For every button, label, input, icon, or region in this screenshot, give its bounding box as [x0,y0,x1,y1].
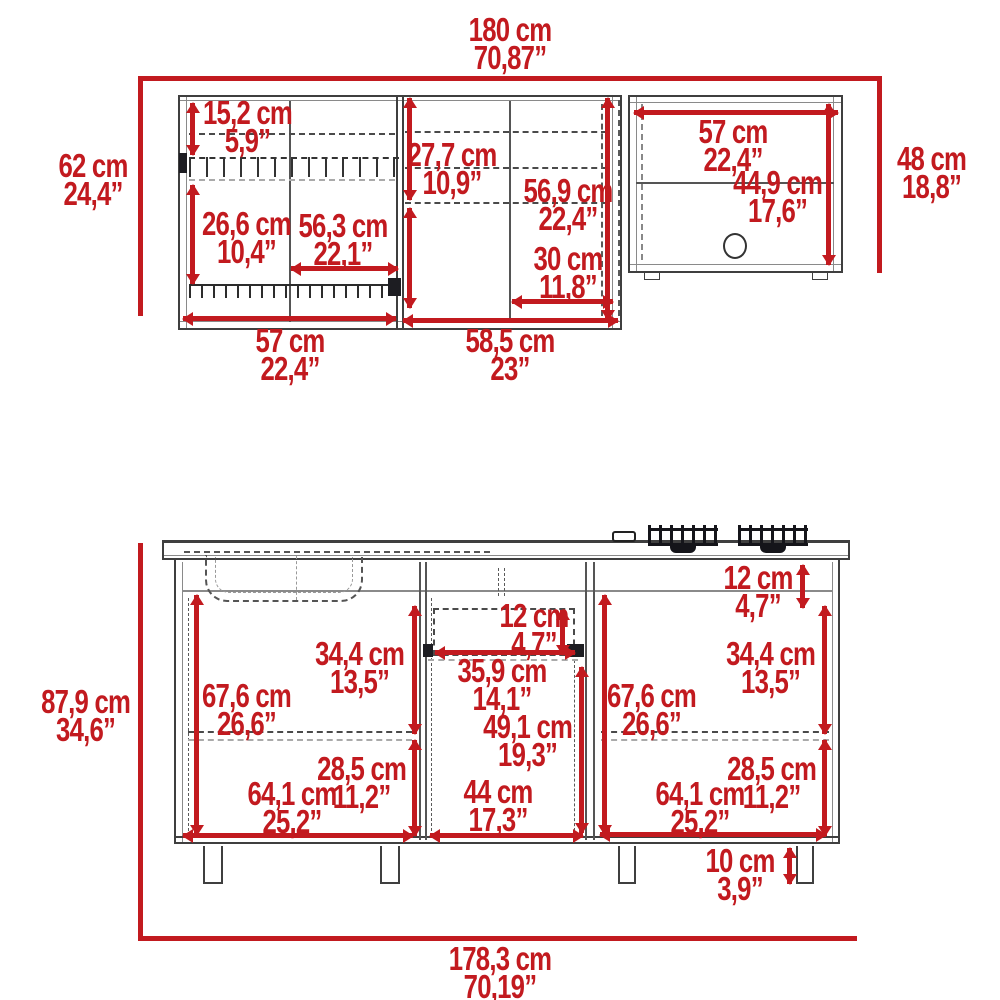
base-divider-1b [425,562,427,840]
open-shelf-foot-left [644,273,660,280]
dim-label-left-upper-section: 34,4 cm 13,5” [315,640,404,696]
cooktop-control-knob [612,531,636,542]
cable-hole [723,233,747,259]
dim-label-glass-rack-width: 56,3 cm 22,1” [299,212,388,268]
dim-label-left-door-width: 64,1 cm 25,2” [248,780,337,836]
dim-label-right-interior-height: 67,6 cm 26,6” [607,682,696,738]
dim-label-upper-right-height: 48 cm 18,8” [897,145,966,201]
base-divider-2b [593,562,595,840]
base-inner-right-line [832,562,833,842]
dim-bracket-upper-left [138,76,143,316]
open-shelf-foot-right [812,273,828,280]
dim-arrow-top-rail-height [800,565,805,608]
dim-label-middle-upper-shelf-spacing: 27,7 cm 10,9” [408,141,497,197]
open-shelf-inner-right-line [833,97,834,271]
in-value: 22,1” [299,240,388,268]
in-value: 25,2” [656,808,745,836]
dim-label-center-door-width: 44 cm 17,3” [463,778,532,834]
sink-basin-divider [296,556,297,600]
in-value: 19,3” [483,741,572,769]
dim-label-top-rail-height: 12 cm 4,7” [724,564,793,620]
dim-label-center-door-height: 49,1 cm 19,3” [483,713,572,769]
dim-arrow-left-lower-section [412,740,417,836]
dim-arrow-right-upper-section [822,606,827,734]
dim-arrow-right-lower-section [822,740,827,836]
in-value: 24,4” [59,180,128,208]
dim-arrow-middle-lower-section [407,208,412,308]
in-value: 18,8” [897,173,966,201]
dim-label-right-shelf-width: 30 cm 11,8” [533,245,602,301]
in-value: 22,4” [524,205,613,233]
dim-arrow-left-interior-height [194,595,199,835]
base-door-edge-dashed-1 [188,598,189,836]
in-value: 10,4” [202,238,291,266]
upper-door-edge-dashed-2 [618,100,620,316]
in-value: 34,6” [41,716,130,744]
in-value: 5,9” [203,127,292,155]
dim-arrow-bottom-shelf-spacing [190,185,195,284]
dim-label-leg-height: 10 cm 3,9” [706,847,775,903]
dim-label-base-overall-height: 87,9 cm 34,6” [41,688,130,744]
in-value: 26,6” [607,710,696,738]
in-value: 17,6” [733,197,822,225]
in-value: 4,7” [724,592,793,620]
cooktop-burner-right [738,525,808,546]
open-shelf-inner-top-line [630,102,841,103]
in-value: 70,19” [449,973,552,1000]
base-inner-left-line [182,562,183,842]
rack-end-bracket-right [388,278,401,296]
dim-label-drawer-height: 12 cm 4,7” [499,602,568,658]
base-door-edge-dashed-3 [574,660,575,836]
stemware-rack-bottom [189,284,393,298]
in-value: 13,5” [315,668,404,696]
base-mid-top-dashed-2 [504,568,505,596]
dim-bracket-upper-right [877,76,882,273]
sink-basin-inner-outline [215,557,353,593]
dim-arrow-center-door-height [579,667,584,833]
dim-bracket-upper-top [138,76,882,81]
cabinet-leg-1 [203,846,223,884]
open-shelf-inner-left-line [636,97,637,271]
dim-label-door-interior-height: 56,9 cm 22,4” [524,177,613,233]
in-value: 23” [466,355,555,383]
in-value: 11,8” [533,273,602,301]
in-value: 3,9” [706,875,775,903]
cabinet-leg-4 [796,846,814,884]
dim-label-right-upper-section: 34,4 cm 13,5” [726,640,815,696]
upper-cabinet-inner-left-line [186,97,187,328]
dim-label-drawer-width: 35,9 cm 14,1” [458,657,547,713]
upper-left-dashed-line-light [189,179,395,181]
dim-label-left-section-width: 57 cm 22,4” [255,327,324,383]
dim-label-right-section-width: 58,5 cm 23” [466,327,555,383]
dim-label-right-door-width: 64,1 cm 25,2” [656,780,745,836]
dim-label-top-shelf-spacing: 15,2 cm 5,9” [203,99,292,155]
in-value: 13,5” [726,668,815,696]
cabinet-leg-3 [618,846,636,884]
sink-counter-dashed-line [184,551,490,553]
dim-arrow-left-upper-section [412,606,417,734]
in-value: 22,4” [255,355,324,383]
dim-label-base-overall-width: 178,3 cm 70,19” [449,945,552,1000]
stemware-rack-top [189,157,399,177]
base-mid-top-dashed-1 [498,568,499,596]
dim-label-left-interior-height: 67,6 cm 26,6” [202,682,291,738]
dim-arrow-top-shelf-spacing [190,103,195,155]
dim-arrow-left-section-width [183,316,396,321]
dim-label-bottom-shelf-spacing: 26,6 cm 10,4” [202,210,291,266]
in-value: 26,6” [202,710,291,738]
in-value: 70,87” [469,44,552,72]
base-door-edge-dashed-2 [431,598,432,836]
dim-label-open-shelf-interior-height: 44,9 cm 17,6” [733,169,822,225]
cooktop-burner-left [648,525,718,546]
dim-arrow-open-shelf-interior-height [826,104,831,265]
drawer-slide-left [423,644,433,657]
dim-label-upper-left-height: 62 cm 24,4” [59,152,128,208]
rack-end-bracket-left [179,153,187,173]
cabinet-leg-2 [380,846,400,884]
in-value: 10,9” [408,169,497,197]
base-divider-1a [419,562,421,840]
dim-bracket-lower-left [138,543,143,941]
open-shelf-door-dashed-line [641,104,643,260]
upper-middle-shelf-dashed-1 [405,131,607,133]
base-divider-2a [585,562,587,840]
open-shelf-inner-bottom-line [630,264,841,265]
in-value: 25,2” [248,808,337,836]
upper-divider-3 [509,101,511,322]
kitchen-cabinet-dimension-diagram: 180 cm 70,87” 62 cm 24,4” 48 cm 18,8” 15… [0,0,1000,1000]
dim-arrow-leg-height [787,848,792,884]
in-value: 17,3” [463,806,532,834]
dim-label-upper-overall-width: 180 cm 70,87” [469,16,552,72]
